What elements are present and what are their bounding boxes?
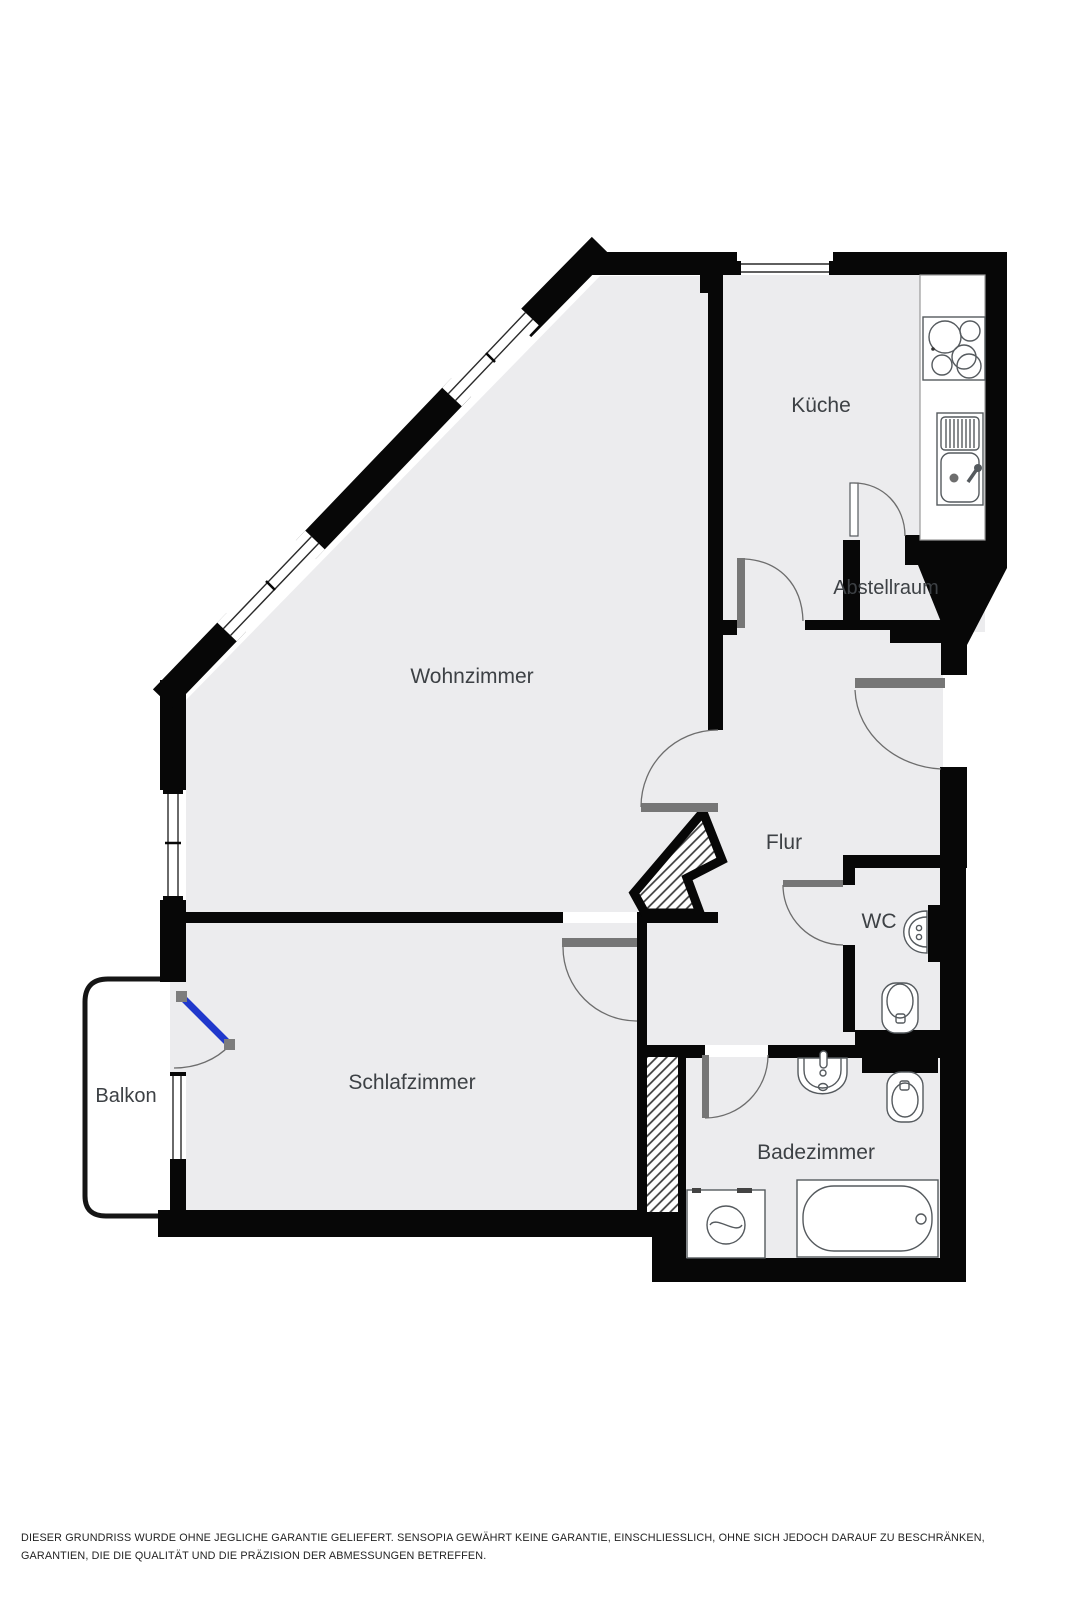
room-label-wc: WC xyxy=(862,910,897,933)
wc-toilet-icon xyxy=(882,983,918,1033)
room-label-badezimmer: Badezimmer xyxy=(757,1141,875,1164)
kitchen-counter xyxy=(920,275,985,540)
stove-icon xyxy=(923,317,985,380)
livingroom-west-window-icon xyxy=(160,790,186,900)
disclaimer-text: DIESER GRUNDRISS WURDE OHNE JEGLICHE GAR… xyxy=(21,1529,1001,1565)
room-label-kueche: Küche xyxy=(791,394,851,417)
bathroom-sink-icon xyxy=(798,1051,847,1094)
bathroom-shaft-hatch xyxy=(647,1057,678,1212)
room-label-balkon: Balkon xyxy=(95,1085,156,1107)
room-label-abstellraum: Abstellraum xyxy=(833,577,939,599)
bedroom-window-icon xyxy=(170,1072,186,1163)
bathtub-icon xyxy=(797,1180,938,1257)
room-label-wohnzimmer: Wohnzimmer xyxy=(410,665,533,688)
floorplan-canvas: Küche Wohnzimmer Abstellraum Flur WC Sch… xyxy=(0,0,1067,1600)
kitchen-sink-icon xyxy=(937,413,983,505)
floors xyxy=(170,275,985,1258)
room-label-schlafzimmer: Schlafzimmer xyxy=(348,1071,475,1094)
washing-machine-icon xyxy=(687,1188,765,1258)
kitchen-window-icon xyxy=(737,252,833,275)
bathroom-toilet-icon xyxy=(887,1072,923,1122)
room-label-flur: Flur xyxy=(766,831,802,854)
